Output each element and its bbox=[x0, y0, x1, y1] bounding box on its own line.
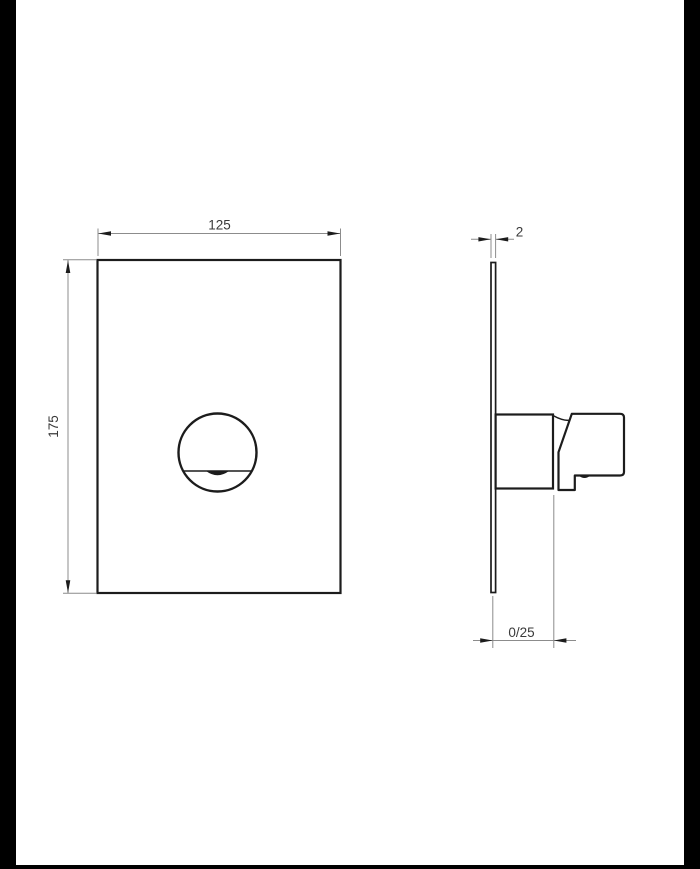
arrowhead-down-icon bbox=[66, 580, 71, 593]
dimension-front-width: 125 bbox=[98, 218, 341, 257]
front-view bbox=[98, 260, 341, 593]
side-handle-indicator-notch bbox=[579, 476, 591, 479]
drawing-page: 125 175 bbox=[0, 0, 700, 869]
arrowhead-left-icon bbox=[98, 231, 111, 236]
side-neck-detail-curve bbox=[553, 416, 569, 421]
arrowhead-right-icon bbox=[328, 231, 341, 236]
front-handle-circle bbox=[179, 414, 257, 492]
arrowhead-up-icon bbox=[66, 260, 71, 273]
side-lever-handle bbox=[559, 414, 625, 490]
side-body-block bbox=[496, 415, 553, 489]
dimension-plate-thickness: 2 bbox=[471, 225, 523, 259]
technical-drawing-canvas: 125 175 bbox=[0, 0, 700, 869]
side-view bbox=[491, 263, 624, 593]
dimension-value-0-25: 0/25 bbox=[508, 625, 534, 640]
page-border-left bbox=[0, 0, 16, 869]
arrowhead-right-icon bbox=[478, 237, 490, 241]
page-border-right bbox=[684, 0, 700, 869]
dimension-installation-depth: 0/25 bbox=[473, 495, 576, 648]
page-border-bottom bbox=[16, 865, 684, 869]
arrowhead-right-icon bbox=[480, 638, 493, 642]
dimension-value-125: 125 bbox=[208, 218, 231, 233]
dimension-value-175: 175 bbox=[46, 415, 61, 438]
dimension-front-height: 175 bbox=[46, 260, 96, 594]
dimension-value-2: 2 bbox=[516, 225, 524, 240]
arrowhead-left-icon bbox=[554, 638, 567, 642]
arrowhead-left-icon bbox=[496, 237, 508, 241]
